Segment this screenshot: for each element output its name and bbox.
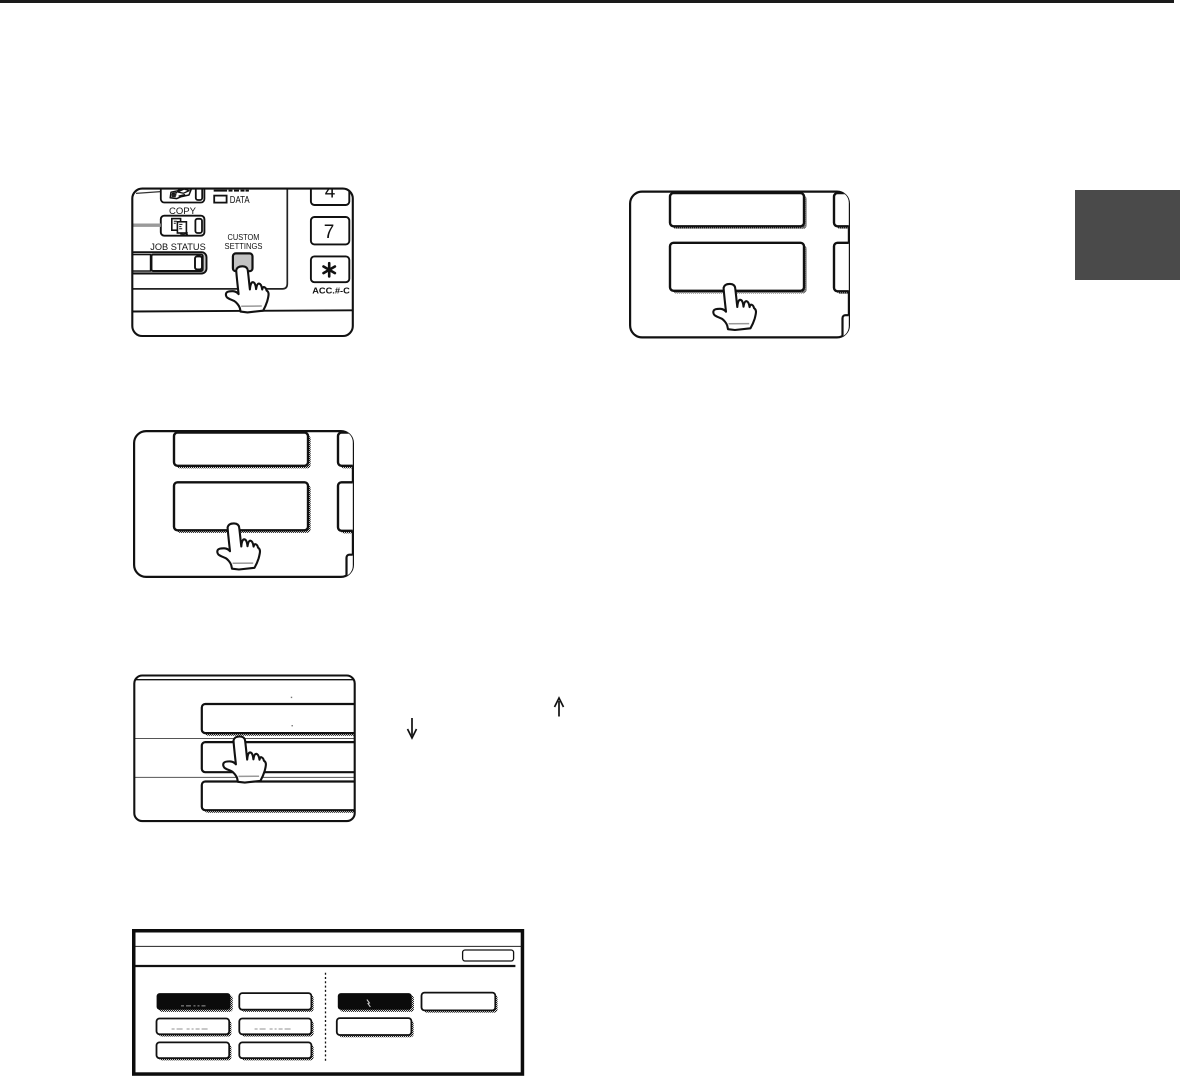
svg-text:ACC.#-C: ACC.#-C bbox=[312, 286, 350, 296]
svg-text:7: 7 bbox=[324, 222, 335, 243]
svg-text:DATA: DATA bbox=[230, 195, 250, 206]
svg-text:4: 4 bbox=[325, 181, 336, 202]
svg-text:CUSTOM: CUSTOM bbox=[228, 233, 260, 242]
svg-text:JOB STATUS: JOB STATUS bbox=[150, 241, 206, 252]
svg-text:SETTINGS: SETTINGS bbox=[225, 242, 263, 251]
